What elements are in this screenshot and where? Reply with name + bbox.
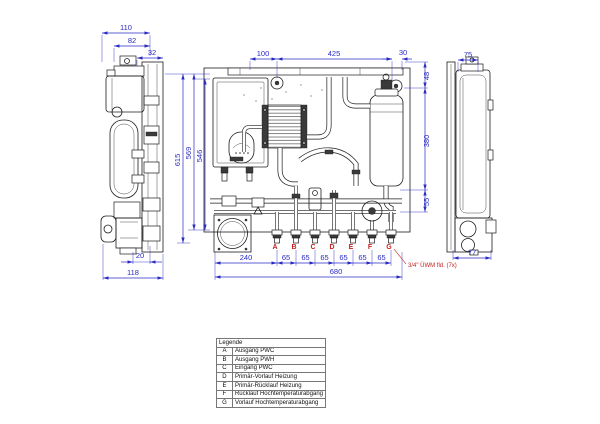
dim-right-view-top: 75 (464, 50, 472, 59)
legend-key: A (217, 347, 233, 356)
dim-right-col-bottom: 55 (422, 198, 431, 206)
legend-label: Primär-Vorlauf Heizung (232, 373, 325, 382)
legend-title: Legende (217, 339, 326, 348)
dim-left-depth: 118 (127, 268, 139, 277)
dim-front-top-right: 30 (399, 48, 407, 57)
connection-note: 3/4" ÜWM fld. (7x) (408, 262, 457, 269)
connection-drop-pipes (277, 186, 391, 230)
right-side-view (447, 57, 496, 255)
dim-pitch: 65 (282, 253, 290, 262)
connection-label-f: F (368, 244, 373, 251)
legend-key: D (217, 373, 233, 382)
dim-height-upper: 569 (184, 147, 193, 160)
dim-pitch: 65 (377, 253, 385, 262)
water-heater (213, 78, 268, 181)
legend-key: B (217, 356, 233, 365)
note-leader-line (394, 249, 406, 264)
legend-row: A Ausgang PWC (217, 347, 326, 356)
connection-label-a: A (272, 244, 277, 251)
dim-left-offset-bottom: 20 (136, 251, 144, 260)
connection-label-d: D (329, 244, 334, 251)
dim-right-view-bottom: 77 (468, 248, 476, 257)
insulated-vessel (370, 74, 403, 186)
legend-row: C Eingang PWC (217, 364, 326, 373)
legend-table: Legende A Ausgang PWC B Ausgang PWH C Ei… (216, 338, 326, 408)
heat-exchanger (262, 105, 307, 148)
panel-texture (243, 84, 322, 101)
dim-left-width-total: 110 (120, 23, 132, 32)
dim-pitch: 65 (358, 253, 366, 262)
dim-left-width-inner: 82 (128, 36, 136, 45)
dim-bottom-left: 240 (240, 253, 253, 262)
technical-drawing-page: 110 82 32 20 118 615 569 546 100 (0, 0, 600, 424)
left-side-view (101, 56, 163, 254)
connection-label-g: G (386, 244, 392, 251)
legend-row: G Vorlauf Hochtemperaturabgang (217, 399, 326, 408)
dim-left-offset-top: 32 (148, 48, 156, 57)
dim-front-top-center: 425 (328, 49, 341, 58)
legend-label: Ausgang PWH (232, 356, 325, 365)
legend-label: Eingang PWC (232, 364, 325, 373)
connection-label-c: C (310, 244, 315, 251)
dim-height-inner: 546 (195, 150, 204, 163)
legend-label: Rücklauf Hochtemperaturabgang (232, 390, 325, 399)
connection-label-e: E (349, 244, 354, 251)
legend-row: D Primär-Vorlauf Heizung (217, 373, 326, 382)
dim-pitch: 65 (301, 253, 309, 262)
flange-unit (214, 196, 264, 252)
legend-key: G (217, 399, 233, 408)
dim-bottom-total: 680 (330, 267, 343, 276)
legend-label: Ausgang PWC (232, 347, 325, 356)
legend-key: F (217, 390, 233, 399)
mounting-rail (228, 68, 403, 75)
legend-row: B Ausgang PWH (217, 356, 326, 365)
legend-key: E (217, 381, 233, 390)
legend-row: E Primär-Rücklauf Heizung (217, 381, 326, 390)
connection-label-b: B (291, 244, 296, 251)
piping (210, 77, 402, 222)
dim-front-top-left: 100 (257, 49, 270, 58)
dim-pitch: 65 (339, 253, 347, 262)
legend-row: F Rücklauf Hochtemperaturabgang (217, 390, 326, 399)
legend-header-row: Legende (217, 339, 326, 348)
dim-pitch: 65 (320, 253, 328, 262)
front-view (204, 68, 410, 252)
legend-key: C (217, 364, 233, 373)
dim-height-total: 615 (173, 154, 182, 167)
legend-label: Vorlauf Hochtemperaturabgang (232, 399, 325, 408)
dim-right-col-middle: 380 (422, 135, 431, 148)
legend-label: Primär-Rücklauf Heizung (232, 381, 325, 390)
dim-right-col-top: 48 (422, 72, 431, 80)
